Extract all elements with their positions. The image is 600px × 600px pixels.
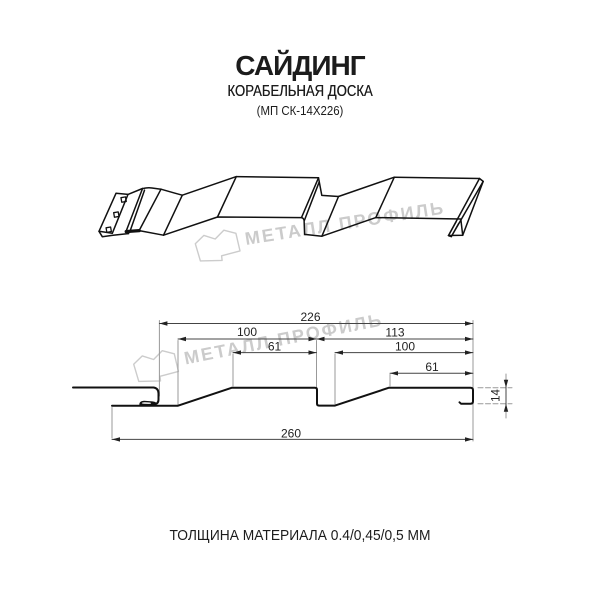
svg-text:260: 260 xyxy=(281,427,301,441)
svg-text:100: 100 xyxy=(237,325,257,339)
svg-text:61: 61 xyxy=(425,360,439,374)
svg-text:100: 100 xyxy=(395,340,415,354)
svg-text:61: 61 xyxy=(268,340,282,354)
svg-text:МЕТАЛЛ ПРОФИЛЬ: МЕТАЛЛ ПРОФИЛЬ xyxy=(243,198,446,249)
svg-text:113: 113 xyxy=(385,326,404,340)
svg-text:14: 14 xyxy=(491,389,503,402)
svg-text:226: 226 xyxy=(300,310,320,324)
